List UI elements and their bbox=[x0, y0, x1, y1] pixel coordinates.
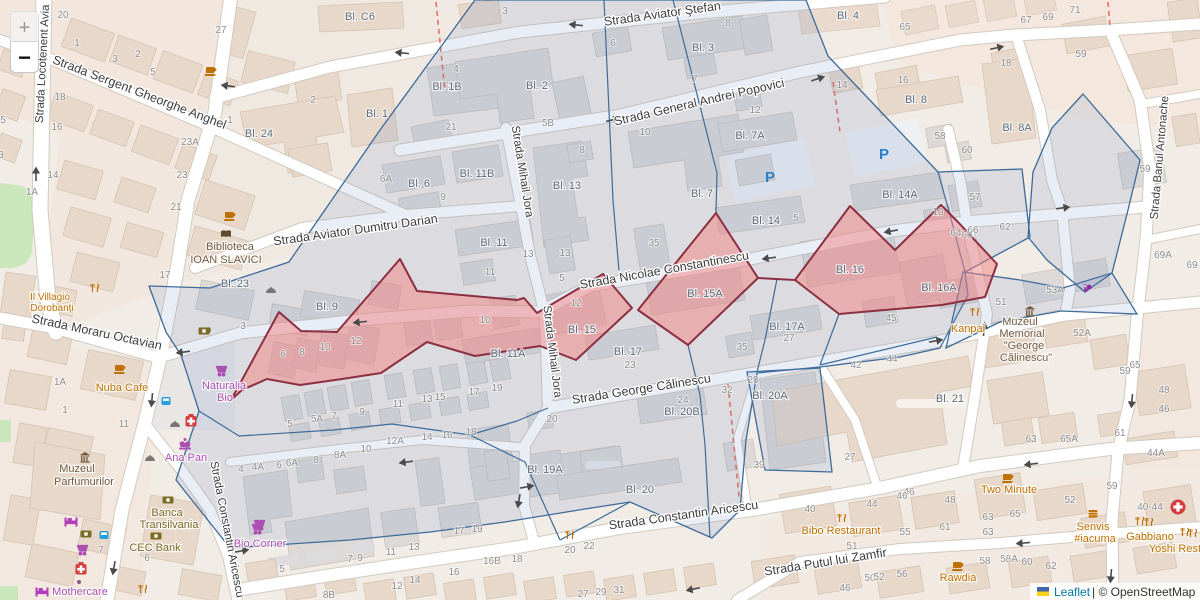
svg-text:28: 28 bbox=[747, 375, 759, 386]
svg-text:27: 27 bbox=[844, 452, 856, 463]
svg-text:31: 31 bbox=[613, 585, 625, 596]
svg-text:Bl. 7A: Bl. 7A bbox=[735, 130, 765, 142]
svg-text:10: 10 bbox=[479, 315, 491, 326]
svg-text:13: 13 bbox=[559, 248, 571, 259]
svg-text:9: 9 bbox=[359, 407, 365, 418]
svg-text:6: 6 bbox=[280, 349, 286, 360]
svg-text:Bl. 20A: Bl. 20A bbox=[752, 390, 788, 402]
svg-text:59: 59 bbox=[1075, 49, 1087, 60]
svg-text:35: 35 bbox=[736, 342, 748, 353]
svg-text:Memorial: Memorial bbox=[999, 328, 1044, 340]
svg-text:Kanpai: Kanpai bbox=[951, 323, 985, 335]
svg-text:P: P bbox=[879, 146, 889, 163]
svg-text:#iacuma: #iacuma bbox=[1074, 533, 1116, 545]
svg-text:Bl. 15A: Bl. 15A bbox=[687, 288, 723, 300]
svg-text:Bl. 9: Bl. 9 bbox=[316, 301, 338, 313]
svg-text:4: 4 bbox=[238, 464, 244, 475]
svg-text:12: 12 bbox=[350, 336, 362, 347]
svg-text:5: 5 bbox=[559, 273, 565, 284]
svg-text:Leaflet: Leaflet bbox=[1054, 585, 1091, 599]
svg-text:63: 63 bbox=[982, 527, 994, 538]
svg-text:8A: 8A bbox=[334, 450, 347, 461]
svg-text:61: 61 bbox=[1114, 428, 1126, 439]
svg-text:35: 35 bbox=[648, 238, 660, 249]
svg-text:−: − bbox=[18, 45, 31, 70]
svg-text:6A: 6A bbox=[380, 174, 393, 185]
svg-text:21: 21 bbox=[170, 202, 182, 213]
svg-text:16: 16 bbox=[51, 122, 63, 133]
svg-text:5A: 5A bbox=[311, 414, 324, 425]
svg-text:11: 11 bbox=[393, 399, 404, 410]
svg-text:4A: 4A bbox=[252, 462, 265, 473]
svg-text:1: 1 bbox=[227, 115, 233, 126]
svg-text:21: 21 bbox=[445, 122, 457, 133]
svg-text:8: 8 bbox=[579, 145, 585, 156]
svg-text:7: 7 bbox=[692, 74, 698, 85]
svg-text:52A: 52A bbox=[1073, 328, 1091, 339]
svg-text:66: 66 bbox=[967, 225, 979, 236]
svg-text:Muzeul: Muzeul bbox=[59, 463, 94, 475]
svg-text:56: 56 bbox=[896, 569, 908, 580]
svg-text:42: 42 bbox=[850, 360, 862, 371]
svg-text:Bl. 20: Bl. 20 bbox=[626, 484, 654, 496]
svg-text:Bl. 15: Bl. 15 bbox=[568, 324, 596, 336]
svg-text:55: 55 bbox=[899, 527, 911, 538]
svg-text:59: 59 bbox=[1139, 164, 1151, 175]
svg-text:27: 27 bbox=[783, 333, 795, 344]
svg-text:65A: 65A bbox=[1060, 434, 1078, 445]
svg-text:P: P bbox=[765, 169, 775, 186]
svg-text:Bl. 13: Bl. 13 bbox=[553, 180, 581, 192]
svg-text:7: 7 bbox=[347, 554, 353, 565]
svg-text:Biblioteca: Biblioteca bbox=[206, 241, 255, 253]
svg-text:12A: 12A bbox=[386, 436, 404, 447]
svg-text:Yoshi Resta: Yoshi Resta bbox=[1149, 543, 1200, 555]
svg-text:52: 52 bbox=[873, 572, 885, 583]
svg-text:61: 61 bbox=[939, 522, 951, 533]
svg-text:44: 44 bbox=[866, 499, 878, 510]
svg-text:Bl. 17A: Bl. 17A bbox=[769, 321, 805, 333]
svg-text:Bio Corner: Bio Corner bbox=[234, 538, 287, 550]
svg-text:Bl. 19A: Bl. 19A bbox=[527, 464, 563, 476]
svg-text:10: 10 bbox=[932, 207, 944, 218]
svg-text:46: 46 bbox=[1158, 404, 1170, 415]
svg-text:1A: 1A bbox=[54, 377, 67, 388]
svg-text:16: 16 bbox=[897, 75, 909, 86]
svg-text:5B: 5B bbox=[542, 118, 555, 129]
svg-text:17: 17 bbox=[159, 270, 171, 281]
svg-text:16: 16 bbox=[448, 567, 460, 578]
svg-text:65: 65 bbox=[1009, 509, 1021, 520]
svg-text:Transilvania: Transilvania bbox=[140, 519, 200, 531]
svg-text:14: 14 bbox=[409, 575, 421, 586]
svg-text:5: 5 bbox=[279, 564, 285, 575]
svg-text:5: 5 bbox=[287, 419, 293, 430]
svg-text:Călinescu": Călinescu" bbox=[1000, 352, 1052, 364]
svg-text:23: 23 bbox=[624, 360, 636, 371]
svg-text:Mothercare: Mothercare bbox=[52, 586, 108, 598]
svg-text:Bl. 11A: Bl. 11A bbox=[491, 348, 526, 360]
svg-text:69: 69 bbox=[1186, 260, 1198, 271]
svg-text:67: 67 bbox=[1020, 15, 1032, 26]
svg-text:2: 2 bbox=[135, 49, 141, 60]
svg-text:19: 19 bbox=[491, 383, 503, 394]
svg-text:Senvis: Senvis bbox=[1076, 521, 1110, 533]
svg-text:59: 59 bbox=[1119, 366, 1131, 377]
svg-text:46: 46 bbox=[896, 491, 908, 502]
svg-text:"George: "George bbox=[1004, 340, 1045, 352]
svg-text:9: 9 bbox=[440, 192, 446, 203]
svg-text:4: 4 bbox=[453, 64, 459, 75]
svg-text:51: 51 bbox=[995, 297, 1007, 308]
svg-text:Muzeul: Muzeul bbox=[1002, 316, 1037, 328]
svg-text:15: 15 bbox=[434, 392, 446, 403]
svg-text:40-44: 40-44 bbox=[1137, 502, 1163, 513]
svg-text:14: 14 bbox=[421, 432, 433, 443]
svg-text:Rawdia: Rawdia bbox=[940, 572, 978, 584]
svg-text:16B: 16B bbox=[483, 556, 501, 567]
svg-text:8: 8 bbox=[313, 455, 319, 466]
svg-text:Bl. 6: Bl. 6 bbox=[408, 178, 430, 190]
svg-text:Bl. 24: Bl. 24 bbox=[245, 128, 273, 140]
svg-text:69A: 69A bbox=[1154, 250, 1172, 261]
svg-text:6A: 6A bbox=[286, 458, 299, 469]
svg-text:Naturalia: Naturalia bbox=[202, 380, 247, 392]
svg-text:18: 18 bbox=[465, 427, 477, 438]
svg-text:17: 17 bbox=[453, 526, 465, 537]
svg-text:5: 5 bbox=[0, 115, 6, 126]
svg-text:Dorobanţi: Dorobanţi bbox=[30, 303, 73, 314]
svg-text:3: 3 bbox=[112, 54, 118, 65]
svg-text:13: 13 bbox=[408, 542, 420, 553]
svg-text:14: 14 bbox=[836, 80, 848, 91]
svg-text:| © OpenStreetMap: | © OpenStreetMap bbox=[1092, 585, 1196, 599]
svg-text:13: 13 bbox=[522, 249, 534, 260]
svg-text:63: 63 bbox=[1025, 434, 1037, 445]
svg-text:3: 3 bbox=[0, 150, 4, 161]
svg-text:6: 6 bbox=[610, 38, 616, 49]
svg-text:7: 7 bbox=[98, 545, 104, 556]
svg-text:45: 45 bbox=[885, 313, 897, 324]
svg-text:Two Minute: Two Minute bbox=[981, 484, 1037, 496]
svg-text:Bl. 1B: Bl. 1B bbox=[432, 81, 461, 93]
svg-text:69: 69 bbox=[1042, 12, 1054, 23]
svg-text:3: 3 bbox=[502, 6, 508, 17]
svg-text:Bl. 2: Bl. 2 bbox=[526, 80, 548, 92]
svg-text:12: 12 bbox=[391, 581, 403, 592]
svg-text:5: 5 bbox=[793, 213, 799, 224]
svg-text:Bl. C6: Bl. C6 bbox=[345, 11, 375, 23]
svg-text:44: 44 bbox=[886, 354, 898, 365]
svg-text:18: 18 bbox=[54, 92, 66, 103]
svg-text:Bibo Restaurant: Bibo Restaurant bbox=[802, 525, 881, 537]
svg-text:10: 10 bbox=[319, 342, 331, 353]
svg-text:Bl. 3: Bl. 3 bbox=[692, 42, 714, 54]
svg-text:48: 48 bbox=[1158, 385, 1170, 396]
svg-text:Bl. 16A: Bl. 16A bbox=[921, 282, 957, 294]
svg-text:24: 24 bbox=[677, 395, 689, 406]
svg-text:Bl. 20B: Bl. 20B bbox=[664, 406, 699, 418]
svg-text:Bl. 11: Bl. 11 bbox=[480, 237, 507, 249]
svg-text:1: 1 bbox=[62, 405, 68, 416]
svg-text:1A: 1A bbox=[26, 187, 39, 198]
svg-text:6: 6 bbox=[144, 553, 150, 564]
svg-text:62: 62 bbox=[1045, 561, 1057, 572]
svg-text:58A: 58A bbox=[1000, 554, 1018, 565]
svg-text:17: 17 bbox=[468, 387, 480, 398]
svg-text:Bl. 17: Bl. 17 bbox=[614, 346, 642, 358]
svg-text:63: 63 bbox=[982, 512, 994, 523]
svg-text:8: 8 bbox=[299, 347, 305, 358]
svg-text:20: 20 bbox=[57, 10, 69, 21]
svg-text:7: 7 bbox=[331, 411, 337, 422]
svg-text:Bl. 8: Bl. 8 bbox=[905, 94, 927, 106]
svg-text:10: 10 bbox=[360, 444, 372, 455]
svg-text:18: 18 bbox=[511, 554, 523, 565]
svg-text:9: 9 bbox=[357, 553, 363, 564]
svg-text:44A: 44A bbox=[1147, 448, 1165, 459]
svg-text:1: 1 bbox=[74, 38, 80, 49]
svg-text:14: 14 bbox=[47, 170, 59, 181]
svg-text:Bl. 4: Bl. 4 bbox=[837, 10, 859, 22]
svg-text:52: 52 bbox=[1064, 495, 1076, 506]
svg-text:8B: 8B bbox=[323, 590, 336, 600]
svg-text:Bl. 1: Bl. 1 bbox=[366, 108, 388, 120]
svg-text:58: 58 bbox=[934, 131, 946, 142]
svg-text:65: 65 bbox=[899, 22, 911, 33]
svg-text:12: 12 bbox=[749, 105, 761, 116]
svg-text:57: 57 bbox=[969, 192, 981, 203]
svg-text:Bio: Bio bbox=[217, 392, 233, 404]
svg-text:8: 8 bbox=[725, 18, 731, 29]
svg-text:Bl. 14A: Bl. 14A bbox=[882, 189, 918, 201]
svg-text:2: 2 bbox=[310, 95, 316, 106]
svg-text:Bl. 21: Bl. 21 bbox=[936, 393, 964, 405]
svg-text:64: 64 bbox=[950, 228, 962, 239]
svg-text:60: 60 bbox=[961, 145, 973, 156]
svg-text:16: 16 bbox=[441, 430, 453, 441]
svg-text:12: 12 bbox=[570, 298, 582, 309]
svg-text:Gabbiano: Gabbiano bbox=[1126, 531, 1174, 543]
svg-text:3: 3 bbox=[240, 321, 246, 332]
svg-text:Bl. 16: Bl. 16 bbox=[836, 264, 864, 276]
svg-text:23A: 23A bbox=[181, 137, 199, 148]
svg-text:27: 27 bbox=[577, 589, 589, 600]
svg-text:39: 39 bbox=[753, 460, 765, 471]
svg-text:65: 65 bbox=[1129, 360, 1141, 371]
svg-text:5: 5 bbox=[150, 67, 156, 78]
svg-text:Parfumurilor: Parfumurilor bbox=[54, 476, 114, 488]
svg-text:53A: 53A bbox=[1046, 285, 1064, 296]
svg-text:Bl. 11B: Bl. 11B bbox=[460, 168, 495, 180]
svg-text:13: 13 bbox=[421, 394, 433, 405]
svg-text:11: 11 bbox=[119, 419, 130, 430]
svg-text:+: + bbox=[19, 17, 31, 39]
svg-text:10: 10 bbox=[639, 127, 651, 138]
svg-text:20: 20 bbox=[546, 414, 558, 425]
svg-text:59: 59 bbox=[1106, 481, 1118, 492]
svg-text:Bl. 23: Bl. 23 bbox=[221, 278, 249, 290]
svg-text:11: 11 bbox=[485, 267, 496, 278]
svg-text:48: 48 bbox=[944, 495, 956, 506]
svg-text:22: 22 bbox=[583, 541, 595, 552]
svg-text:Il Villagio: Il Villagio bbox=[30, 292, 70, 303]
svg-text:62: 62 bbox=[999, 222, 1011, 233]
svg-text:Ana Pan: Ana Pan bbox=[165, 452, 207, 464]
svg-text:20: 20 bbox=[564, 545, 576, 556]
svg-text:46: 46 bbox=[839, 583, 851, 594]
svg-text:19: 19 bbox=[471, 524, 483, 535]
svg-text:Nuba Cafe: Nuba Cafe bbox=[96, 382, 149, 394]
svg-text:6: 6 bbox=[276, 460, 282, 471]
svg-text:18: 18 bbox=[1000, 58, 1012, 69]
svg-text:11: 11 bbox=[386, 547, 397, 558]
svg-text:CEC Bank: CEC Bank bbox=[129, 542, 181, 554]
svg-text:23: 23 bbox=[176, 170, 188, 181]
svg-text:60: 60 bbox=[1021, 557, 1033, 568]
svg-text:Bl. 14: Bl. 14 bbox=[752, 215, 780, 227]
svg-text:71: 71 bbox=[1069, 5, 1081, 16]
svg-text:Bl. 7: Bl. 7 bbox=[691, 188, 713, 200]
svg-text:IOAN SLAVICI: IOAN SLAVICI bbox=[190, 254, 261, 266]
svg-text:58: 58 bbox=[979, 556, 991, 567]
svg-text:27: 27 bbox=[215, 25, 227, 36]
svg-text:29: 29 bbox=[595, 587, 607, 598]
svg-text:32: 32 bbox=[721, 385, 733, 396]
svg-text:40: 40 bbox=[804, 504, 816, 515]
svg-text:Bl. 8A: Bl. 8A bbox=[1002, 122, 1032, 134]
svg-text:Banca: Banca bbox=[151, 507, 183, 519]
svg-text:51: 51 bbox=[846, 541, 858, 552]
